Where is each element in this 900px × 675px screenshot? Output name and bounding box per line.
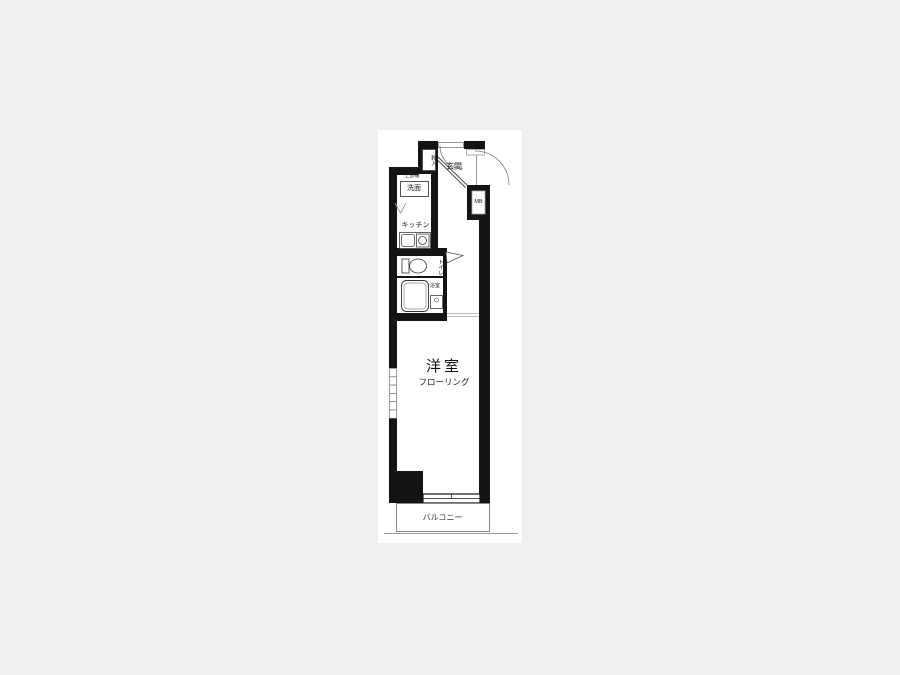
label-western-room: 洋室 [409,359,479,375]
label-kitchen: キッチン [399,222,432,229]
floor-plan-page: 玄関 靴入 MB 上部棚 洗面 キッチン トイレ 浴室 洋室 フローリング バル… [378,130,522,543]
floor-plan-canvas: 玄関 靴入 MB 上部棚 洗面 キッチン トイレ 浴室 洋室 フローリング バル… [0,0,900,675]
toilet-bowl-icon [410,259,427,273]
label-shoe-cabinet: 靴入 [423,151,435,170]
entry-side-lintel [467,150,485,156]
bathtub-icon [402,281,429,312]
label-upper-shelf: 上部棚 [400,174,424,179]
folding-door-mark [395,203,406,213]
label-flooring: フローリング [404,378,484,387]
side-door-swing-arc [475,151,509,185]
toilet-door-triangle [446,252,463,263]
label-washbasin: 洗面 [400,185,428,192]
label-genkan: 玄関 [439,163,469,171]
label-toilet: トイレ [434,257,442,277]
toilet-tank-icon [402,259,409,273]
label-bathroom: 浴室 [428,284,442,289]
side-window-strip [390,369,397,419]
label-balcony: バルコニー [396,514,489,522]
label-meter-box: MB [472,200,485,206]
kitchen-sink-icon [402,235,415,247]
